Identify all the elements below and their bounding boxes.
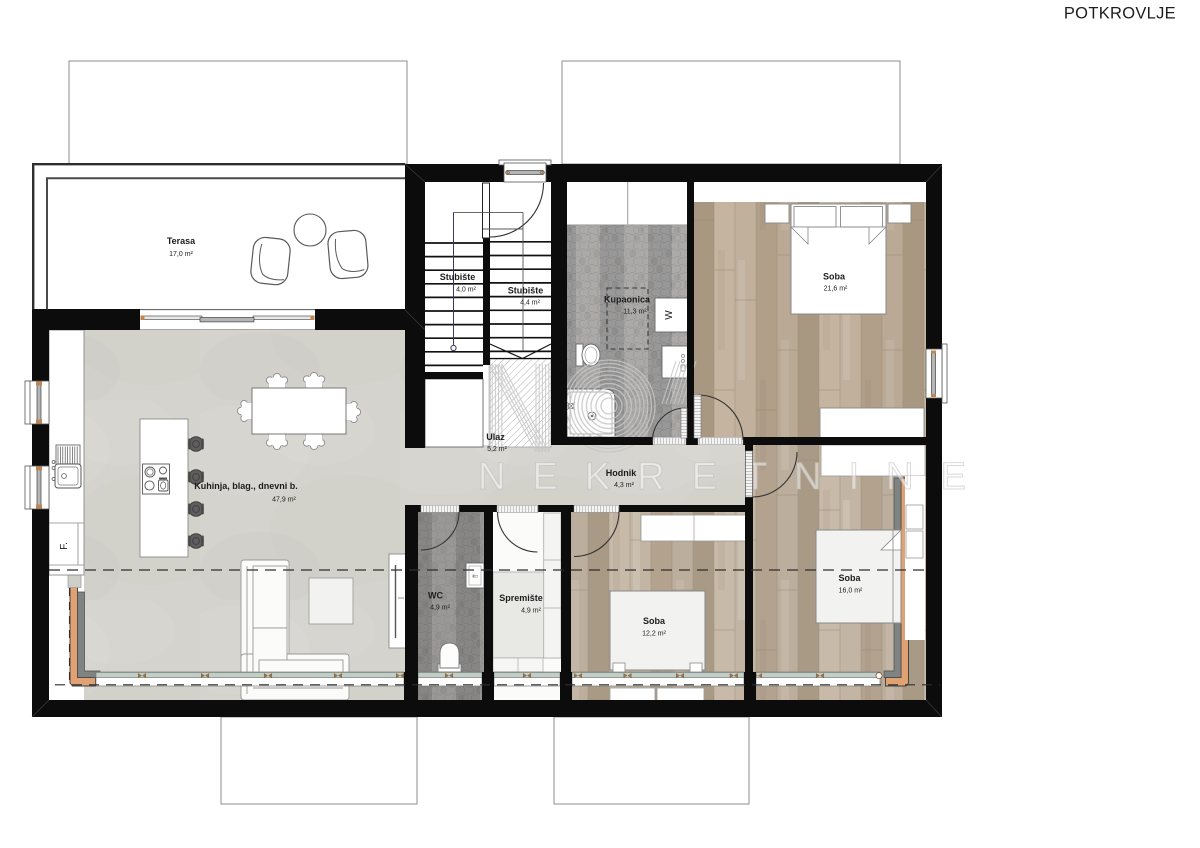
svg-text:W: W: [664, 310, 675, 320]
svg-text:Terasa: Terasa: [167, 236, 196, 246]
svg-text:Soba: Soba: [823, 272, 846, 282]
svg-text:F.: F.: [59, 542, 70, 550]
svg-text:POTKROVLJE: POTKROVLJE: [1064, 5, 1176, 23]
svg-text:4,9 m²: 4,9 m²: [521, 608, 542, 615]
svg-text:21,6 m²: 21,6 m²: [824, 286, 848, 293]
svg-text:4,3 m²: 4,3 m²: [614, 482, 635, 489]
svg-text:4,9 m²: 4,9 m²: [430, 605, 451, 612]
svg-text:Hodnik: Hodnik: [606, 468, 637, 478]
svg-text:4,4 m²: 4,4 m²: [520, 300, 541, 307]
svg-text:47,9 m²: 47,9 m²: [272, 497, 296, 504]
svg-text:Spremište: Spremište: [499, 593, 543, 603]
svg-text:4,0 m²: 4,0 m²: [456, 287, 477, 294]
svg-text:WC: WC: [428, 591, 443, 601]
svg-text:®□: ®□: [472, 573, 478, 579]
svg-text:Ulaz: Ulaz: [486, 432, 505, 442]
svg-text:Soba: Soba: [643, 616, 666, 626]
svg-text:Soba: Soba: [838, 573, 861, 583]
svg-text:Kuhinja, blag., dnevni b.: Kuhinja, blag., dnevni b.: [194, 481, 298, 491]
svg-text:11,3 m²: 11,3 m²: [623, 309, 647, 316]
svg-text:Kupaonica: Kupaonica: [604, 295, 651, 305]
svg-text:16,0 m²: 16,0 m²: [839, 588, 863, 595]
svg-text:Stubište: Stubište: [508, 286, 544, 296]
svg-text:NEKRETNINE: NEKRETNINE: [478, 456, 993, 498]
svg-text:12,2 m²: 12,2 m²: [642, 631, 666, 638]
svg-text:17,0 m²: 17,0 m²: [169, 251, 193, 258]
svg-text:Stubište: Stubište: [440, 272, 476, 282]
svg-text:5,2 m²: 5,2 m²: [487, 446, 508, 453]
